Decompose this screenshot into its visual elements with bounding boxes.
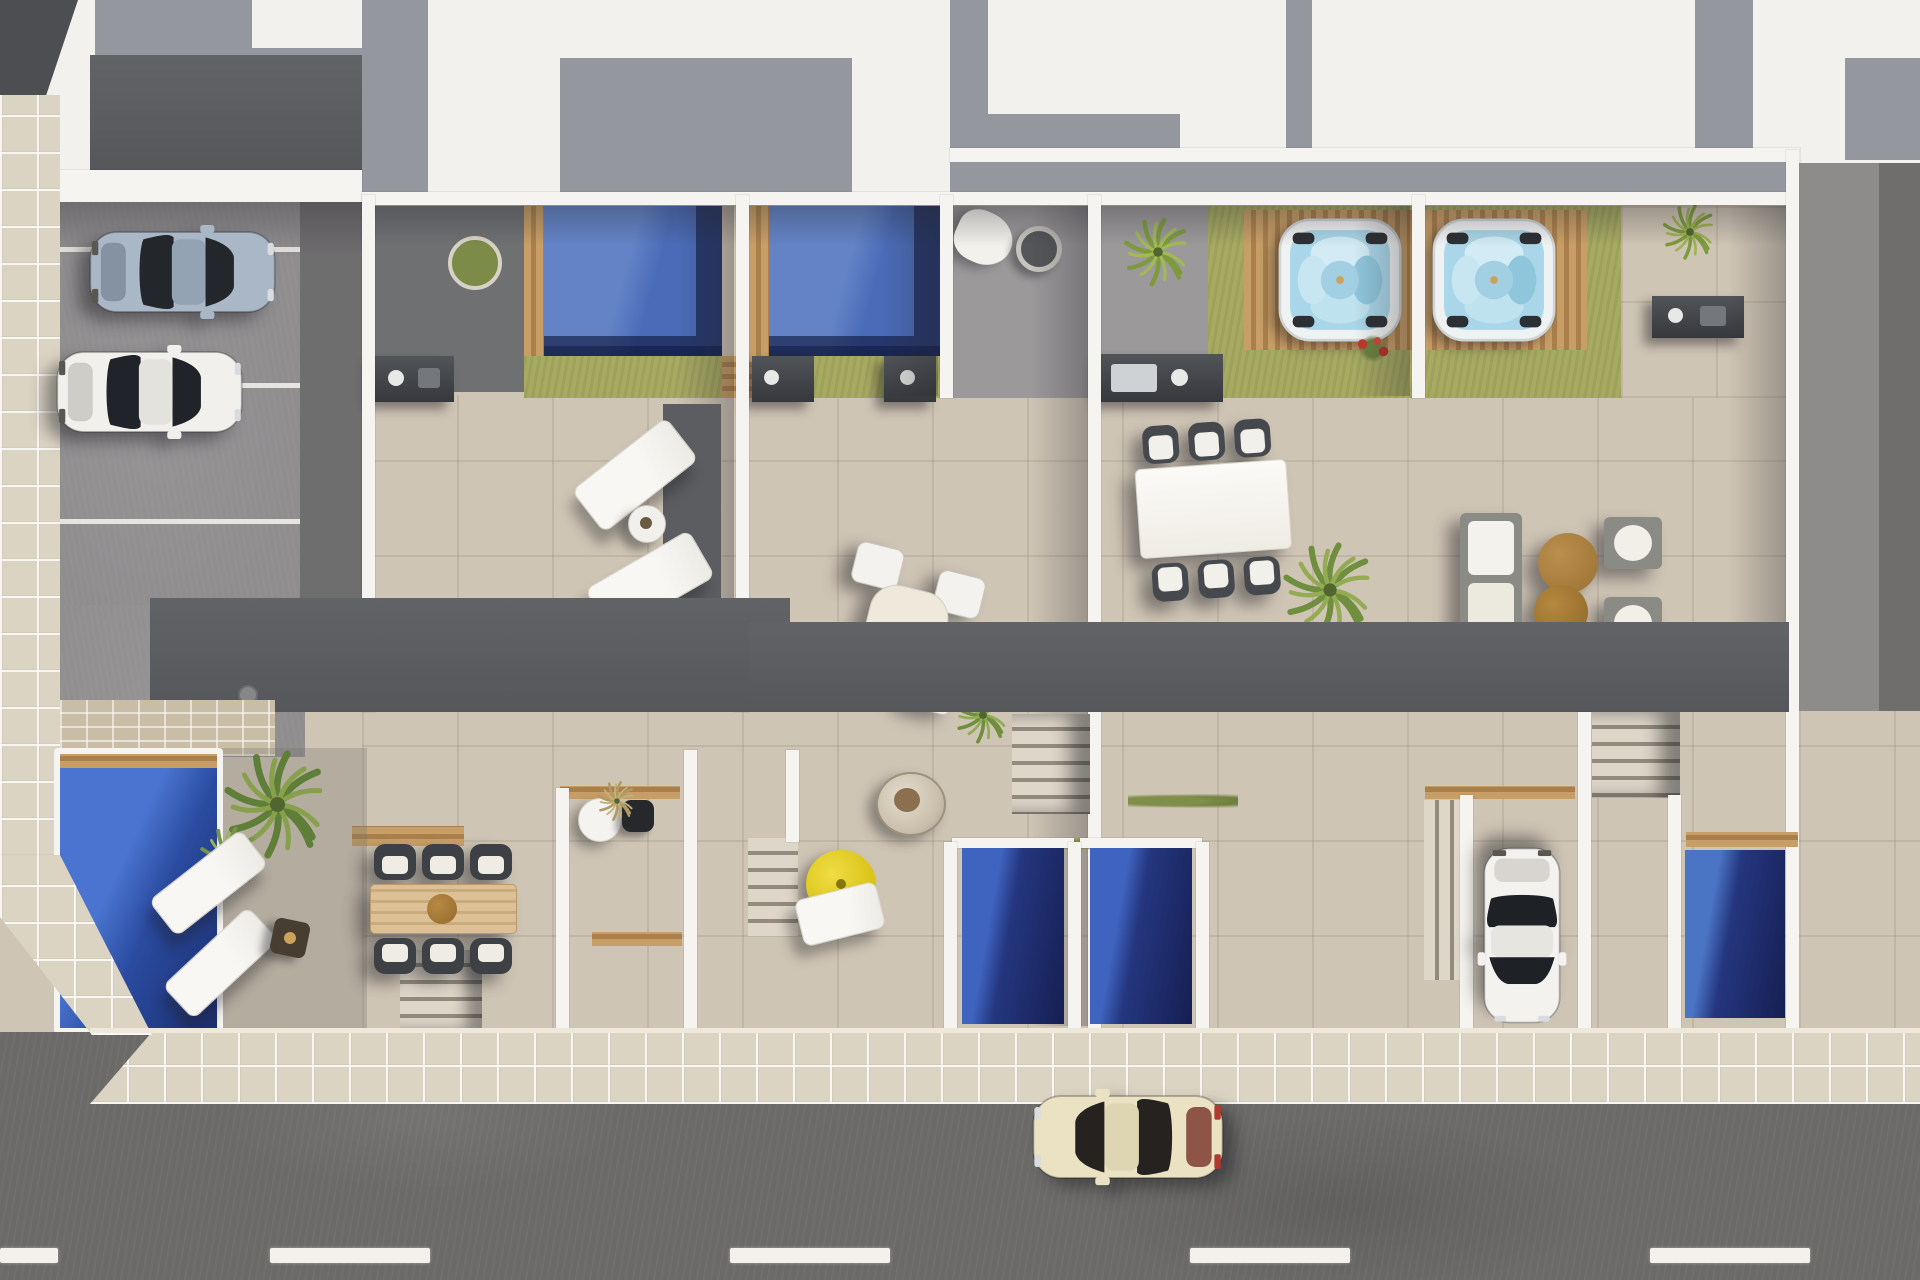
roof-shadow-block [560, 58, 852, 195]
wall-parking-top [58, 170, 362, 202]
wall-b [940, 195, 953, 398]
cushion [1194, 431, 1220, 457]
cushion [1249, 560, 1275, 586]
lane-dash [270, 1248, 430, 1263]
wall-ground [684, 750, 697, 1032]
table-center [427, 894, 457, 924]
pergola-timber-edge [1686, 832, 1798, 847]
wall-ground [944, 842, 957, 1032]
chair [1151, 562, 1190, 602]
sink [1171, 369, 1188, 386]
wall-ground [1068, 842, 1081, 1032]
wicker-chair [422, 844, 464, 880]
pergola-timber-edge [592, 932, 682, 946]
outdoor-kitchen-c [1101, 354, 1223, 402]
sink [388, 370, 404, 386]
hanging-egg-chair [876, 772, 946, 836]
side-table-dark [269, 917, 312, 960]
outdoor-kitchen-b [752, 356, 814, 402]
roof-shadow-block [1845, 58, 1920, 160]
car-parked-white [52, 342, 247, 442]
wicker-chair [374, 938, 416, 974]
staircase-mid [1012, 714, 1090, 814]
cushion [478, 944, 504, 962]
plunge-pool-ground-3 [1685, 850, 1785, 1018]
table-center [283, 931, 297, 945]
cushion [430, 856, 456, 874]
outdoor-kitchen-a [374, 356, 454, 402]
wall-upper-right [950, 148, 1800, 162]
cushion [1614, 525, 1652, 561]
armchair [1604, 517, 1662, 569]
coffee-table-round [1538, 533, 1598, 593]
wicker-chair [422, 938, 464, 974]
curb-line [90, 1028, 1920, 1033]
wicker-chair [470, 938, 512, 974]
wall-top [362, 192, 1799, 205]
right-building-patio [1799, 711, 1920, 1032]
cast-shadow [882, 206, 938, 396]
cushion [1468, 521, 1514, 575]
roof-shadow-strip [362, 0, 428, 195]
chair [1141, 424, 1180, 464]
roof-white-block [252, 0, 362, 48]
plunge-pool-ground-2 [1090, 848, 1192, 1024]
lane-dash [0, 1248, 58, 1263]
sidewalk-bottom [90, 1032, 1920, 1104]
side-table-round [628, 505, 666, 543]
wall-right-boundary [1786, 150, 1799, 1032]
car-driveway-white-slot [1474, 846, 1570, 1026]
pergola-timber-edge [1425, 786, 1575, 799]
cushion [382, 944, 408, 962]
cushion [1203, 563, 1229, 589]
seat-cushion [894, 788, 920, 812]
parking-stall-line [60, 519, 305, 524]
pool-ledge [952, 838, 1074, 848]
car-parked-silver-blue [85, 222, 280, 322]
wall-ground [1196, 842, 1209, 1032]
roof-deck-dark [90, 55, 362, 173]
plunge-pool-ground-1 [962, 848, 1064, 1024]
grill [1700, 306, 1726, 326]
cushion [382, 856, 408, 874]
car-driveway-white [1475, 844, 1570, 1028]
cast-shadow [1354, 206, 1410, 396]
pool-ledge [1080, 838, 1202, 848]
wall-ground [786, 750, 799, 842]
sink [1668, 308, 1683, 323]
table-center [640, 517, 652, 529]
vine-greenery [1128, 794, 1238, 808]
counter-top [1111, 364, 1157, 392]
wicker-chair [470, 844, 512, 880]
wall-cd [1412, 195, 1425, 398]
pool-main-timber-edge [60, 754, 217, 768]
car-street-cream [1028, 1086, 1228, 1188]
sidewalk-left [0, 95, 60, 857]
chair [1187, 421, 1226, 461]
lane-dash [1190, 1248, 1350, 1263]
wicker-chair [374, 844, 416, 880]
wall-ground [556, 788, 569, 1032]
right-building-slab [1799, 163, 1920, 711]
wicker-dining-set [352, 842, 530, 978]
lane-dash [730, 1248, 890, 1263]
wall-ground [1668, 795, 1681, 1032]
chair [1233, 418, 1272, 458]
dining-table [1134, 459, 1292, 559]
staircase-right [1592, 712, 1680, 798]
dry-plant [594, 778, 640, 824]
roof-shadow-ledge [950, 162, 1786, 195]
wall-ground [1460, 795, 1473, 1032]
aerial-render-canvas [0, 0, 1920, 1280]
staircase-small [748, 838, 798, 936]
deck-band-right [749, 622, 1789, 712]
sink [764, 370, 779, 385]
cushion [1157, 566, 1183, 592]
chair [1197, 559, 1236, 599]
cushion [1148, 435, 1174, 461]
wall-ground [1578, 712, 1591, 1032]
timber-dining-table [370, 884, 517, 934]
staircase-driveway [1424, 800, 1462, 980]
roof-shadow-strip [1695, 0, 1753, 150]
cushion [1240, 428, 1266, 454]
cushion [430, 944, 456, 962]
grill [418, 368, 440, 388]
lane-dash [1650, 1248, 1810, 1263]
cushion [478, 856, 504, 874]
